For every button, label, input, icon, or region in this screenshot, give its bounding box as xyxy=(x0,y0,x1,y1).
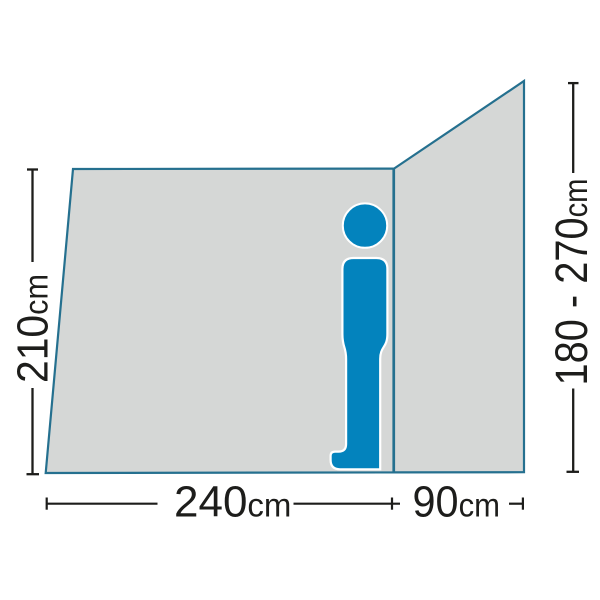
svg-text:180 - 270cm: 180 - 270cm xyxy=(546,179,597,386)
svg-text:90cm: 90cm xyxy=(413,478,501,527)
svg-text:210cm: 210cm xyxy=(9,274,58,383)
svg-text:240cm: 240cm xyxy=(174,478,291,527)
